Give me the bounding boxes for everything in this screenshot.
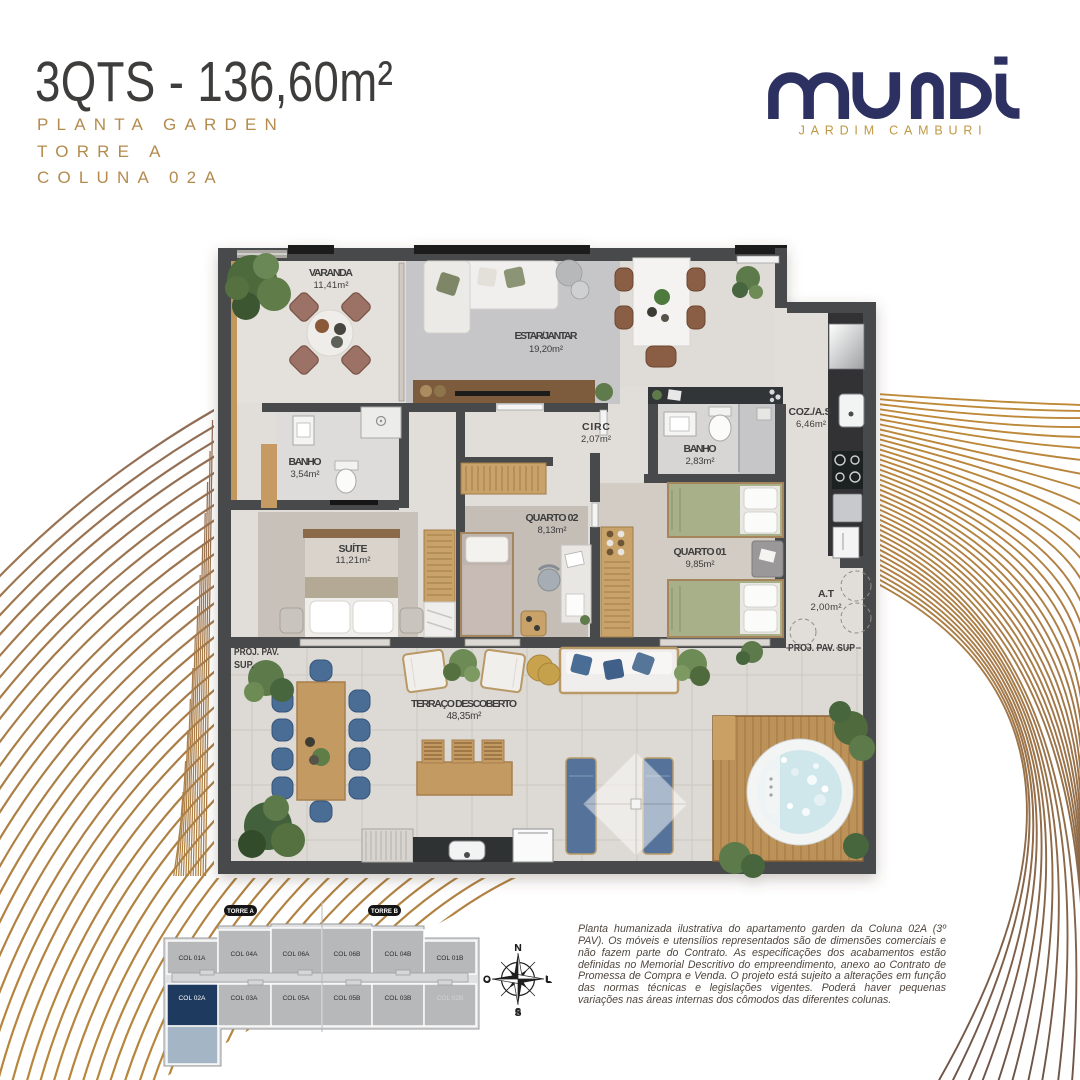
- svg-text:11,41m²: 11,41m²: [314, 280, 349, 291]
- svg-text:48,35m²: 48,35m²: [447, 711, 483, 722]
- svg-text:COL 05A: COL 05A: [283, 995, 310, 1002]
- svg-text:11,21m²: 11,21m²: [336, 555, 371, 566]
- svg-text:TORRE A: TORRE A: [227, 909, 254, 915]
- svg-text:A.T: A.T: [818, 588, 835, 600]
- svg-text:2,83m²: 2,83m²: [686, 456, 715, 467]
- svg-text:2,00m²: 2,00m²: [811, 602, 842, 613]
- svg-text:6,46m²: 6,46m²: [796, 419, 826, 430]
- svg-text:N: N: [514, 942, 522, 954]
- svg-text:S: S: [514, 1007, 521, 1019]
- svg-text:COL 03A: COL 03A: [231, 995, 258, 1002]
- svg-text:SUÍTE: SUÍTE: [339, 542, 368, 555]
- svg-text:COL 05B: COL 05B: [334, 995, 361, 1002]
- svg-text:L: L: [546, 974, 553, 986]
- svg-text:BANHO: BANHO: [684, 443, 717, 455]
- svg-text:ESTAR/JANTAR: ESTAR/JANTAR: [515, 330, 578, 342]
- svg-text:BANHO: BANHO: [289, 456, 322, 468]
- svg-text:PROJ. PAV. SUP: PROJ. PAV. SUP: [788, 643, 855, 654]
- svg-text:COL 01B: COL 01B: [437, 955, 464, 962]
- svg-text:CIRC: CIRC: [582, 421, 610, 433]
- svg-text:TERRAÇO DESCOBERTO: TERRAÇO DESCOBERTO: [411, 698, 517, 710]
- svg-text:COL 06A: COL 06A: [283, 951, 310, 958]
- svg-text:COL 04B: COL 04B: [385, 951, 412, 958]
- svg-text:JARDIM CAMBURI: JARDIM CAMBURI: [799, 124, 988, 138]
- svg-text:TORRE B: TORRE B: [371, 909, 399, 915]
- svg-text:8,13m²: 8,13m²: [538, 525, 567, 536]
- svg-text:QUARTO 02: QUARTO 02: [526, 512, 579, 524]
- svg-text:PROJ. PAV.: PROJ. PAV.: [234, 647, 279, 658]
- svg-text:COL 02A: COL 02A: [179, 995, 206, 1002]
- svg-text:SUP.: SUP.: [234, 660, 254, 671]
- svg-text:COL 06B: COL 06B: [334, 951, 361, 958]
- svg-text:O: O: [483, 974, 491, 986]
- svg-text:COL 01A: COL 01A: [179, 955, 206, 962]
- svg-text:9,85m²: 9,85m²: [686, 559, 715, 570]
- svg-text:COZ./A.S: COZ./A.S: [789, 406, 832, 418]
- svg-text:2,07m²: 2,07m²: [581, 434, 611, 445]
- svg-text:19,20m²: 19,20m²: [529, 344, 563, 355]
- svg-text:COL 04A: COL 04A: [231, 951, 258, 958]
- svg-text:COL 03B: COL 03B: [385, 995, 412, 1002]
- svg-text:3,54m²: 3,54m²: [291, 469, 320, 480]
- svg-text:QUARTO 01: QUARTO 01: [674, 546, 727, 558]
- svg-text:VARANDA: VARANDA: [309, 267, 353, 279]
- svg-text:COL 02B: COL 02B: [437, 995, 464, 1002]
